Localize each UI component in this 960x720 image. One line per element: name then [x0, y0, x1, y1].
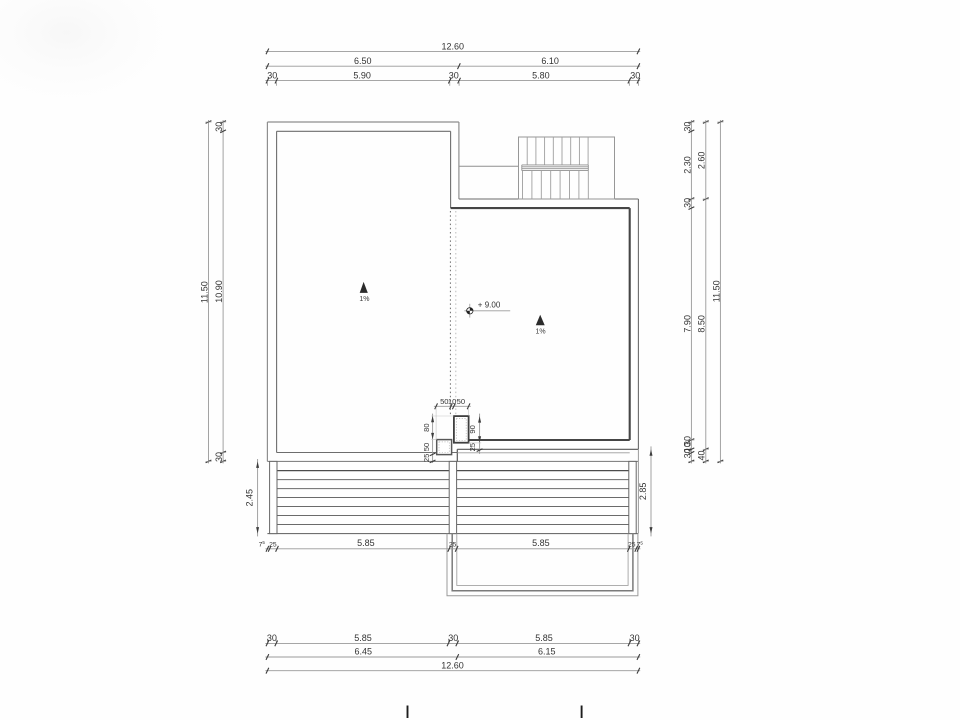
svg-text:30: 30 — [267, 633, 277, 643]
svg-text:30: 30 — [630, 70, 640, 80]
svg-text:25: 25 — [449, 541, 457, 548]
svg-text:12.60: 12.60 — [442, 41, 465, 51]
svg-text:10: 10 — [448, 397, 456, 406]
svg-text:25: 25 — [628, 542, 636, 549]
svg-text:5.85: 5.85 — [532, 538, 550, 548]
svg-text:2.60: 2.60 — [697, 152, 707, 170]
svg-text:30: 30 — [682, 198, 692, 208]
svg-text:6.15: 6.15 — [538, 647, 556, 657]
svg-text:25: 25 — [422, 454, 431, 462]
svg-text:5.85: 5.85 — [535, 633, 553, 643]
svg-text:80: 80 — [422, 423, 431, 431]
svg-text:6.45: 6.45 — [355, 647, 373, 657]
svg-text:10.90: 10.90 — [214, 280, 224, 303]
svg-text:5.85: 5.85 — [354, 633, 372, 643]
svg-text:30: 30 — [449, 70, 459, 80]
svg-text:+ 9.00: + 9.00 — [478, 300, 501, 309]
svg-text:50: 50 — [422, 443, 431, 451]
svg-text:2.85: 2.85 — [638, 483, 648, 501]
svg-text:11.50: 11.50 — [711, 280, 721, 302]
svg-text:7.90: 7.90 — [682, 315, 692, 333]
svg-text:30: 30 — [682, 122, 692, 132]
svg-text:5.90: 5.90 — [353, 70, 371, 80]
svg-text:25: 25 — [468, 443, 477, 451]
svg-text:50: 50 — [457, 397, 465, 406]
svg-text:1%: 1% — [535, 329, 545, 336]
svg-text:5.80: 5.80 — [532, 70, 550, 80]
svg-text:30: 30 — [214, 122, 224, 132]
svg-text:2.30: 2.30 — [682, 156, 692, 174]
svg-text:12.60: 12.60 — [441, 660, 464, 670]
svg-text:90: 90 — [468, 425, 477, 433]
svg-text:8.50: 8.50 — [697, 315, 707, 333]
svg-text:30: 30 — [267, 70, 277, 80]
svg-text:30: 30 — [682, 448, 692, 458]
svg-text:40: 40 — [697, 450, 707, 460]
svg-text:30: 30 — [214, 452, 224, 462]
svg-text:30: 30 — [630, 633, 640, 643]
svg-text:11.50: 11.50 — [199, 281, 209, 303]
svg-text:30: 30 — [448, 633, 458, 643]
svg-text:6.50: 6.50 — [354, 56, 372, 66]
svg-text:1%: 1% — [359, 296, 369, 303]
svg-text:25: 25 — [269, 541, 277, 548]
svg-text:5.85: 5.85 — [357, 538, 375, 548]
svg-text:2.45: 2.45 — [245, 489, 255, 507]
svg-text:6.10: 6.10 — [541, 56, 559, 66]
